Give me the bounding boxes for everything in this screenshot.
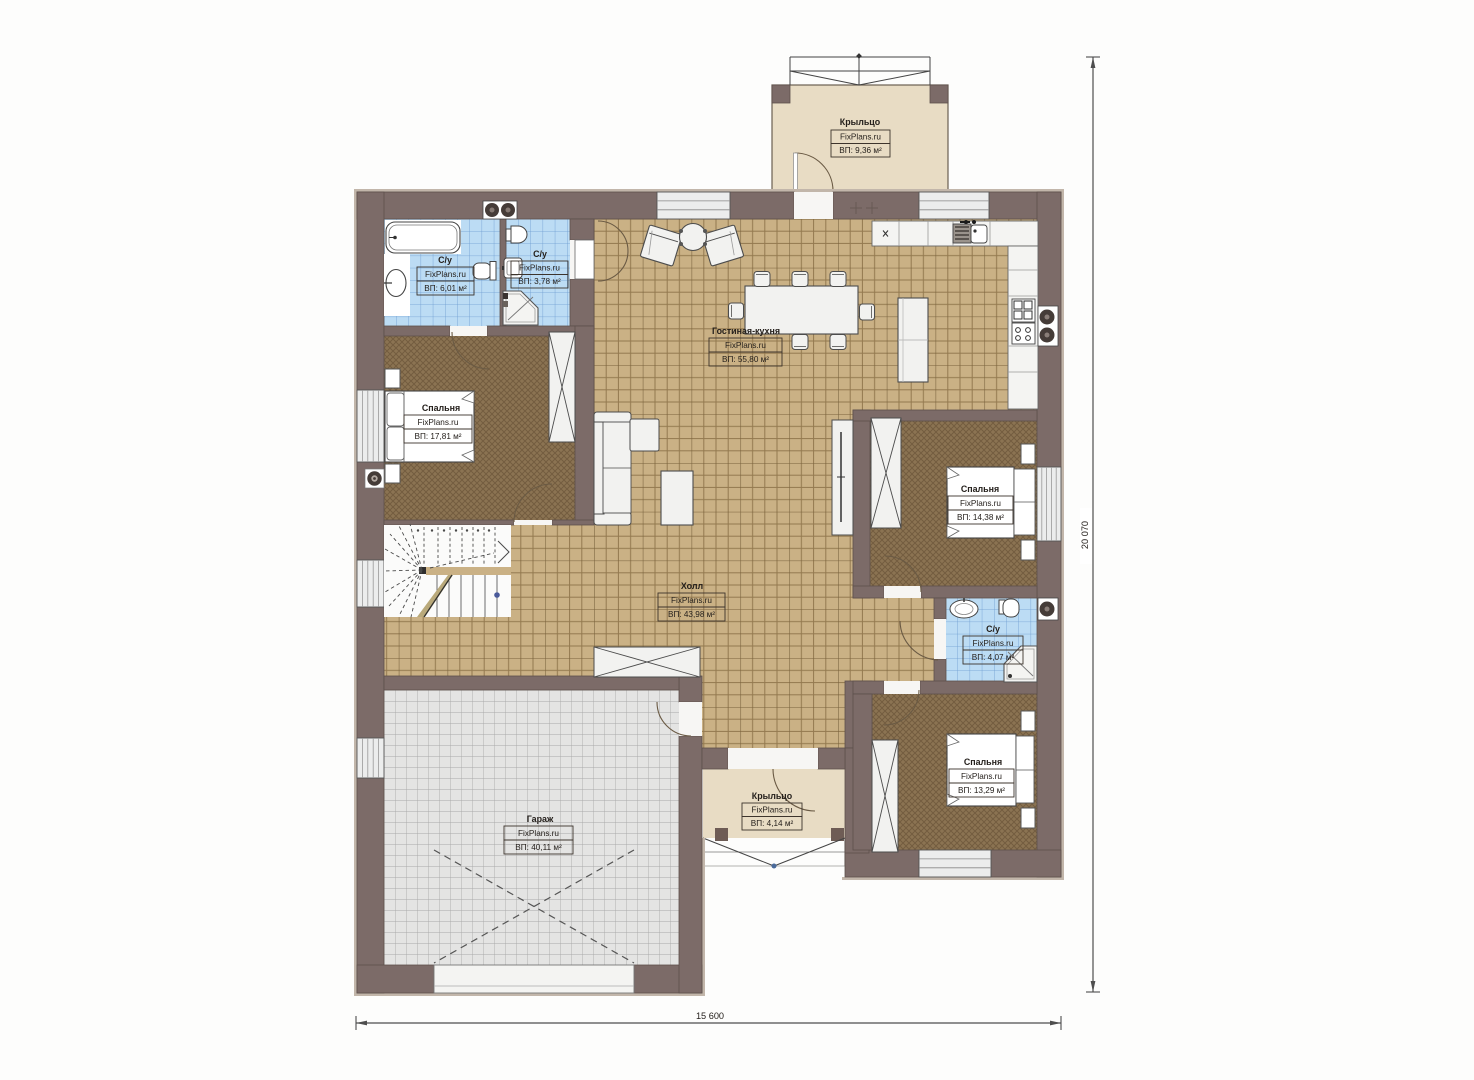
svg-text:ВП: 4,14 м²: ВП: 4,14 м² bbox=[751, 819, 794, 828]
svg-text:FixPlans.ru: FixPlans.ru bbox=[973, 639, 1014, 648]
svg-text:ВП: 43,98 м²: ВП: 43,98 м² bbox=[668, 610, 715, 619]
svg-text:ВП: 9,36 м²: ВП: 9,36 м² bbox=[839, 146, 882, 155]
svg-text:15 600: 15 600 bbox=[696, 1011, 724, 1021]
svg-text:ВП: 14,38 м²: ВП: 14,38 м² bbox=[957, 513, 1004, 522]
svg-text:ВП: 17,81 м²: ВП: 17,81 м² bbox=[414, 432, 461, 441]
svg-text:ВП: 55,80 м²: ВП: 55,80 м² bbox=[722, 355, 769, 364]
svg-text:FixPlans.ru: FixPlans.ru bbox=[725, 341, 766, 350]
svg-text:Спальня: Спальня bbox=[964, 757, 1002, 767]
svg-text:Крыльцо: Крыльцо bbox=[752, 791, 793, 801]
svg-text:FixPlans.ru: FixPlans.ru bbox=[519, 264, 560, 273]
svg-text:FixPlans.ru: FixPlans.ru bbox=[961, 772, 1002, 781]
svg-text:ВП: 13,29 м²: ВП: 13,29 м² bbox=[958, 786, 1005, 795]
svg-text:FixPlans.ru: FixPlans.ru bbox=[425, 270, 466, 279]
svg-text:FixPlans.ru: FixPlans.ru bbox=[960, 499, 1001, 508]
svg-text:FixPlans.ru: FixPlans.ru bbox=[518, 829, 559, 838]
svg-text:ВП: 40,11 м²: ВП: 40,11 м² bbox=[515, 843, 562, 852]
svg-text:Гостиная-кухня: Гостиная-кухня bbox=[712, 326, 780, 336]
svg-text:FixPlans.ru: FixPlans.ru bbox=[671, 596, 712, 605]
svg-text:Гараж: Гараж bbox=[527, 814, 554, 824]
svg-text:20 070: 20 070 bbox=[1080, 521, 1090, 549]
svg-text:FixPlans.ru: FixPlans.ru bbox=[752, 806, 793, 815]
svg-text:Холл: Холл bbox=[681, 581, 704, 591]
svg-text:Спальня: Спальня bbox=[961, 484, 999, 494]
svg-text:С/у: С/у bbox=[533, 249, 547, 259]
svg-text:ВП: 4,07 м²: ВП: 4,07 м² bbox=[972, 653, 1015, 662]
svg-text:С/у: С/у bbox=[438, 255, 452, 265]
svg-text:Крыльцо: Крыльцо bbox=[840, 117, 881, 127]
svg-text:С/у: С/у bbox=[986, 624, 1000, 634]
svg-text:FixPlans.ru: FixPlans.ru bbox=[418, 418, 459, 427]
svg-text:ВП: 6,01 м²: ВП: 6,01 м² bbox=[424, 284, 467, 293]
svg-text:Спальня: Спальня bbox=[422, 403, 460, 413]
svg-text:FixPlans.ru: FixPlans.ru bbox=[840, 133, 881, 142]
svg-text:ВП: 3,78 м²: ВП: 3,78 м² bbox=[518, 277, 561, 286]
